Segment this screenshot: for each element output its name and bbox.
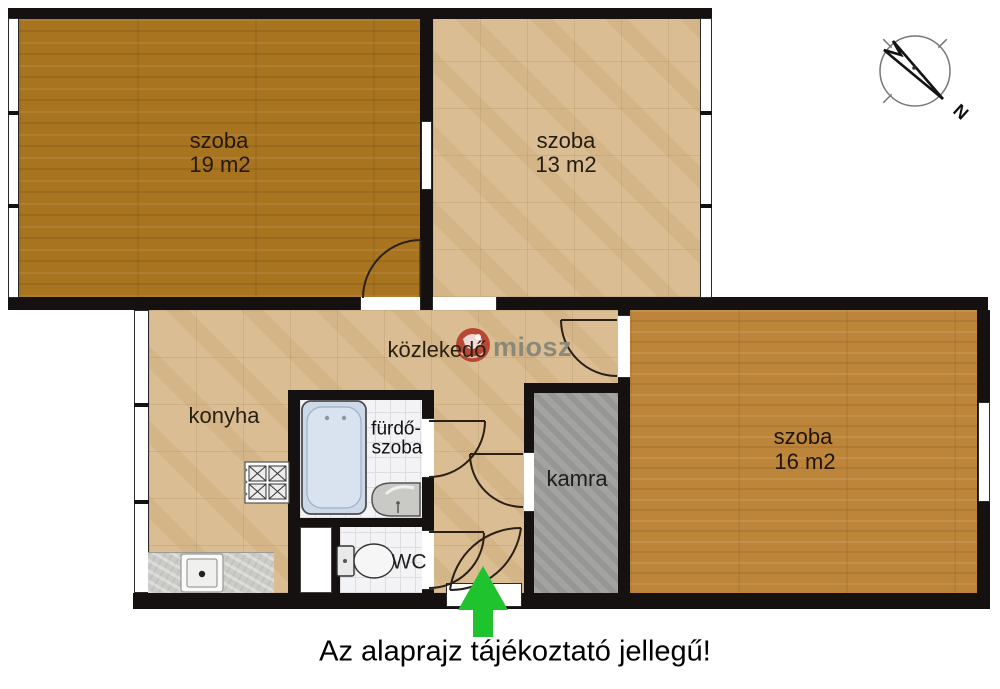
- watermark-text: miosz: [493, 332, 572, 363]
- door-arc-kamra: [470, 454, 523, 507]
- room-area-szoba19: 19 m2: [189, 153, 250, 177]
- entrance-arrow-icon: [458, 566, 508, 637]
- room-area-szoba16: 16 m2: [774, 450, 835, 474]
- room-label-szoba16: szoba: [774, 425, 833, 449]
- room-label-wc: WC: [392, 550, 427, 573]
- room-label-furdoszoba-line2: szoba: [372, 439, 423, 460]
- room-label-kamra: kamra: [546, 467, 607, 491]
- compass-rose-icon: N: [880, 36, 972, 124]
- room-label-konyha: konyha: [189, 404, 260, 428]
- bathtub: [302, 401, 366, 514]
- door-arc-szoba19: [363, 240, 421, 298]
- disclaimer-text: Az alaprajz tájékoztató jellegű!: [319, 636, 711, 669]
- toilet: [337, 544, 394, 578]
- door-arc-bathroom: [429, 421, 485, 477]
- room-label-kozlekedo: közlekedő: [387, 338, 486, 362]
- bathroom-sink: [372, 483, 420, 516]
- room-label-szoba13: szoba: [537, 129, 596, 153]
- compass-north-label: N: [949, 100, 972, 124]
- stove: [245, 462, 289, 503]
- kitchen-sink: [181, 554, 223, 592]
- floor-plan: N szoba 19 m2 szoba 13 m2 szoba 16 m2 ko…: [0, 0, 1000, 689]
- room-area-szoba13: 13 m2: [535, 153, 596, 177]
- room-label-szoba19: szoba: [190, 129, 249, 153]
